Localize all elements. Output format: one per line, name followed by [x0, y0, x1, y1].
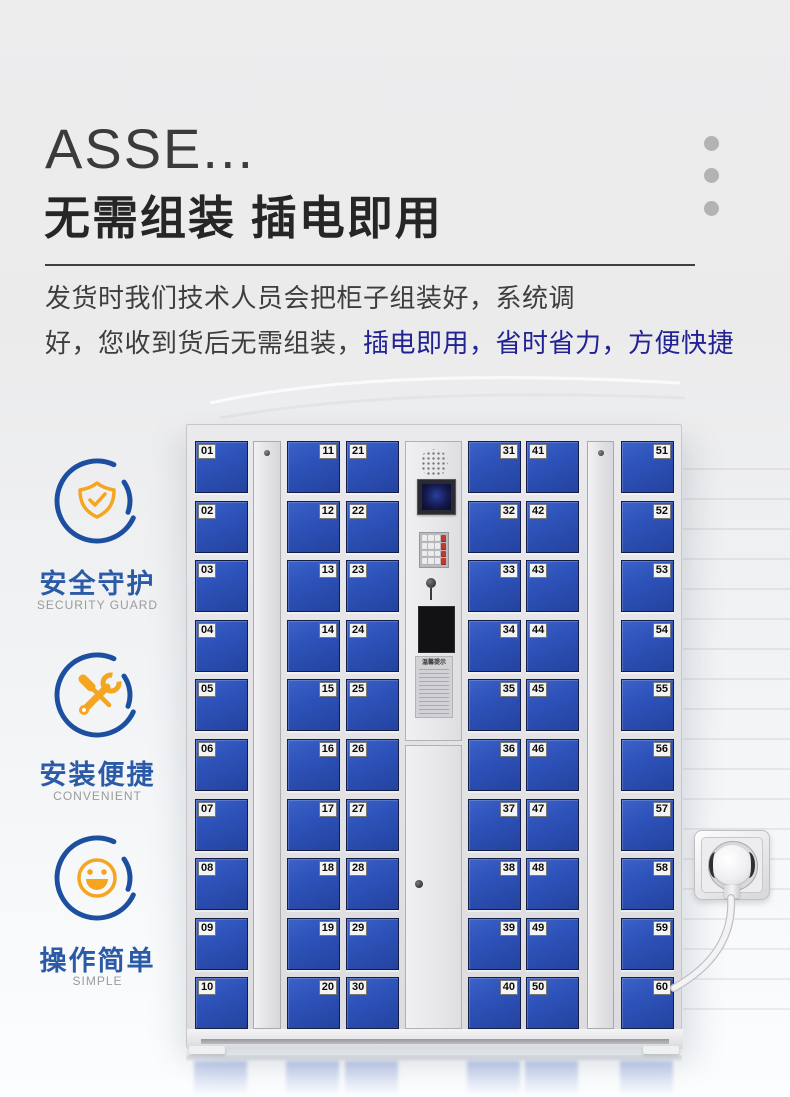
locker-door-number: 34: [500, 623, 518, 638]
locker-door-04: 04: [195, 620, 248, 672]
reflection-ghost: [525, 1061, 578, 1093]
locker-door-19: 19: [287, 918, 340, 970]
panel-lock-icon: [426, 578, 436, 588]
locker-door-29: 29: [346, 918, 399, 970]
wall-curve-decor: [180, 348, 700, 428]
locker-door-09: 09: [195, 918, 248, 970]
control-panel-lower-door: [405, 745, 462, 1029]
locker-door-07: 07: [195, 799, 248, 851]
ellipsis-dot-icon: [704, 136, 719, 151]
cabinet-base: [187, 1029, 683, 1049]
locker-column-2: 11121314151617181920: [287, 425, 340, 1029]
locker-door-24: 24: [346, 620, 399, 672]
locker-door-46: 46: [526, 739, 579, 791]
locker-door-number: 01: [198, 444, 216, 459]
locker-door-number: 20: [319, 980, 337, 995]
display-screen: [417, 479, 456, 515]
locker-door-20: 20: [287, 977, 340, 1029]
locker-door-number: 06: [198, 742, 216, 757]
locker-door-10: 10: [195, 977, 248, 1029]
locker-door-31: 31: [468, 441, 521, 493]
locker-door-number: 28: [349, 861, 367, 876]
locker-door-05: 05: [195, 679, 248, 731]
keypad-key: [422, 543, 427, 550]
locker-door-41: 41: [526, 441, 579, 493]
shield-check-icon: [49, 453, 145, 549]
locker-door-35: 35: [468, 679, 521, 731]
display-screen-glow: [422, 484, 451, 510]
locker-door-08: 08: [195, 858, 248, 910]
header-divider: [45, 264, 695, 266]
keypad-key: [428, 535, 433, 542]
locker-door-36: 36: [468, 739, 521, 791]
speaker-grille-icon: [420, 449, 448, 477]
locker-door-50: 50: [526, 977, 579, 1029]
locker-door-number: 09: [198, 921, 216, 936]
locker-door-number: 32: [500, 504, 518, 519]
locker-door-number: 18: [319, 861, 337, 876]
ellipsis-dot-icon: [704, 168, 719, 183]
reflection-ghost: [467, 1061, 520, 1093]
locker-door-number: 27: [349, 802, 367, 817]
locker-door-15: 15: [287, 679, 340, 731]
cabinet-foot: [643, 1046, 679, 1054]
description-line1: 发货时我们技术人员会把柜子组装好，系统调: [45, 283, 575, 313]
locker-door-number: 49: [529, 921, 547, 936]
locker-door-number: 10: [198, 980, 216, 995]
locker-door-number: 37: [500, 802, 518, 817]
locker-door-number: 07: [198, 802, 216, 817]
locker-door-52: 52: [621, 501, 674, 553]
locker-door-32: 32: [468, 501, 521, 553]
feature-label-security: 安全守护: [0, 562, 195, 601]
locker-door-number: 05: [198, 682, 216, 697]
reflection-ghost: [620, 1061, 673, 1093]
locker-door-13: 13: [287, 560, 340, 612]
locker-door-34: 34: [468, 620, 521, 672]
page-title-en: ASSE...: [45, 116, 255, 181]
locker-door-22: 22: [346, 501, 399, 553]
locker-door-57: 57: [621, 799, 674, 851]
key-in-lock-icon: [430, 588, 432, 600]
keypad-key: [422, 551, 427, 558]
drop-slot-panel: [418, 606, 455, 653]
floor-reflection: [186, 1055, 682, 1095]
keypad-key: [435, 535, 440, 542]
locker-door-number: 54: [653, 623, 671, 638]
keypad-key-red: [441, 535, 446, 542]
feature-sublabel-security: SECURITY GUARD: [0, 598, 195, 612]
locker-column-3: 21222324252627282930: [346, 425, 399, 1029]
locker-column-4: 31323334353637383940: [468, 425, 521, 1029]
keypad-key: [428, 558, 433, 565]
locker-door-number: 25: [349, 682, 367, 697]
locker-door-54: 54: [621, 620, 674, 672]
locker-door-number: 51: [653, 444, 671, 459]
locker-door-23: 23: [346, 560, 399, 612]
feature-label-convenient: 安装便捷: [0, 753, 195, 792]
locker-door-number: 15: [319, 682, 337, 697]
locker-door-number: 44: [529, 623, 547, 638]
keypad-key-red: [441, 558, 446, 565]
locker-door-43: 43: [526, 560, 579, 612]
locker-door-number: 35: [500, 682, 518, 697]
locker-door-number: 58: [653, 861, 671, 876]
locker-door-18: 18: [287, 858, 340, 910]
locker-column-5: 41424344454647484950: [526, 425, 579, 1029]
locker-door-39: 39: [468, 918, 521, 970]
locker-door-47: 47: [526, 799, 579, 851]
locker-door-48: 48: [526, 858, 579, 910]
keypad-key: [435, 558, 440, 565]
reflection-ghost: [345, 1061, 398, 1093]
locker-door-number: 31: [500, 444, 518, 459]
keypad-key: [428, 543, 433, 550]
locker-door-14: 14: [287, 620, 340, 672]
locker-door-06: 06: [195, 739, 248, 791]
locker-door-25: 25: [346, 679, 399, 731]
locker-door-number: 56: [653, 742, 671, 757]
locker-door-17: 17: [287, 799, 340, 851]
locker-door-number: 14: [319, 623, 337, 638]
feature-sublabel-convenient: CONVENIENT: [0, 789, 195, 803]
locker-door-number: 30: [349, 980, 367, 995]
keypad: [419, 532, 449, 568]
locker-door-44: 44: [526, 620, 579, 672]
keypad-key: [422, 558, 427, 565]
locker-door-12: 12: [287, 501, 340, 553]
locker-door-number: 41: [529, 444, 547, 459]
instruction-sticker-text-lines: [419, 669, 449, 715]
locker-door-number: 48: [529, 861, 547, 876]
locker-door-number: 36: [500, 742, 518, 757]
locker-side-panel-right: [587, 441, 614, 1029]
control-panel-column: 温馨提示: [405, 441, 463, 1029]
locker-door-21: 21: [346, 441, 399, 493]
locker-door-number: 11: [319, 444, 337, 459]
locker-door-42: 42: [526, 501, 579, 553]
locker-door-number: 16: [319, 742, 337, 757]
locker-door-number: 38: [500, 861, 518, 876]
locker-door-38: 38: [468, 858, 521, 910]
locker-door-26: 26: [346, 739, 399, 791]
product-detail-page: ASSE... 无需组装 插电即用 发货时我们技术人员会把柜子组装好，系统调 好…: [0, 0, 790, 1097]
keypad-key: [435, 551, 440, 558]
locker-door-number: 50: [529, 980, 547, 995]
locker-door-11: 11: [287, 441, 340, 493]
locker-door-number: 39: [500, 921, 518, 936]
locker-door-number: 55: [653, 682, 671, 697]
locker-door-16: 16: [287, 739, 340, 791]
locker-door-30: 30: [346, 977, 399, 1029]
locker-door-27: 27: [346, 799, 399, 851]
locker-door-number: 57: [653, 802, 671, 817]
locker-door-number: 45: [529, 682, 547, 697]
page-title-cn: 无需组装 插电即用: [44, 182, 443, 248]
keypad-key-red: [441, 551, 446, 558]
locker-door-number: 02: [198, 504, 216, 519]
keypad-key: [422, 535, 427, 542]
locker-door-number: 17: [319, 802, 337, 817]
cabinet-foot: [189, 1046, 225, 1054]
locker-door-number: 29: [349, 921, 367, 936]
locker-door-28: 28: [346, 858, 399, 910]
keypad-key-red: [441, 543, 446, 550]
locker-door-01: 01: [195, 441, 248, 493]
locker-door-number: 43: [529, 563, 547, 578]
keypad-key: [428, 551, 433, 558]
locker-door-03: 03: [195, 560, 248, 612]
locker-door-number: 13: [319, 563, 337, 578]
instruction-sticker-title: 温馨提示: [419, 660, 449, 667]
floor-reflection-strip: [186, 1055, 682, 1060]
locker-door-number: 08: [198, 861, 216, 876]
locker-door-45: 45: [526, 679, 579, 731]
locker-door-56: 56: [621, 739, 674, 791]
locker-door-number: 26: [349, 742, 367, 757]
locker-door-33: 33: [468, 560, 521, 612]
locker-door-number: 33: [500, 563, 518, 578]
instruction-sticker: 温馨提示: [415, 656, 453, 718]
locker-door-number: 52: [653, 504, 671, 519]
locker-door-number: 47: [529, 802, 547, 817]
smiley-icon: [49, 830, 145, 926]
feature-label-simple: 操作简单: [0, 939, 195, 978]
cabinet-base-groove: [201, 1039, 669, 1044]
wrench-screwdriver-icon: [49, 647, 145, 743]
power-cable: [640, 880, 790, 1010]
locker-door-51: 51: [621, 441, 674, 493]
reflection-ghost: [286, 1061, 339, 1093]
keypad-key: [435, 543, 440, 550]
panel-lock-icon: [264, 450, 270, 456]
locker-door-number: 53: [653, 563, 671, 578]
locker-door-number: 23: [349, 563, 367, 578]
locker-door-49: 49: [526, 918, 579, 970]
locker-door-number: 03: [198, 563, 216, 578]
locker-door-number: 40: [500, 980, 518, 995]
locker-column-1: 01020304050607080910: [195, 425, 248, 1029]
locker-door-number: 04: [198, 623, 216, 638]
locker-door-number: 24: [349, 623, 367, 638]
locker-side-panel-left: [253, 441, 281, 1029]
feature-sublabel-simple: SIMPLE: [0, 974, 195, 988]
locker-door-number: 12: [319, 504, 337, 519]
locker-door-number: 21: [349, 444, 367, 459]
locker-door-55: 55: [621, 679, 674, 731]
locker-cabinet: 0102030405060708091011121314151617181920…: [186, 424, 682, 1048]
locker-door-number: 42: [529, 504, 547, 519]
locker-door-37: 37: [468, 799, 521, 851]
power-plug: [712, 845, 752, 885]
ellipsis-dot-icon: [704, 201, 719, 216]
locker-door-40: 40: [468, 977, 521, 1029]
locker-door-number: 46: [529, 742, 547, 757]
reflection-ghost: [194, 1061, 247, 1093]
locker-door-number: 19: [319, 921, 337, 936]
locker-door-53: 53: [621, 560, 674, 612]
locker-door-02: 02: [195, 501, 248, 553]
panel-lock-icon: [598, 450, 604, 456]
locker-door-number: 22: [349, 504, 367, 519]
keyhole-icon: [415, 880, 423, 888]
